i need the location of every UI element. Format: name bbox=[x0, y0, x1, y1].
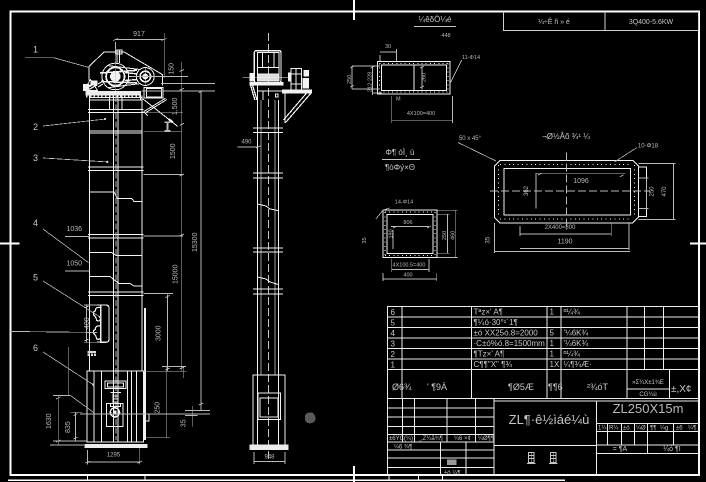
svg-text:¼êδÒ¼é: ¼êδÒ¼é bbox=[419, 15, 452, 24]
svg-text:2X400=800: 2X400=800 bbox=[545, 225, 577, 231]
svg-text:806: 806 bbox=[403, 220, 412, 226]
svg-text:±6: ±6 bbox=[676, 426, 683, 432]
svg-text:250: 250 bbox=[155, 402, 162, 414]
svg-text:Ø6¾: Ø6¾ bbox=[392, 382, 412, 392]
svg-text:4X100=400: 4X100=400 bbox=[407, 111, 435, 117]
svg-text:3Q400-5.6KW: 3Q400-5.6KW bbox=[629, 19, 674, 26]
svg-text:1190: 1190 bbox=[557, 239, 572, 246]
svg-text:º¼¾: º¼¾ bbox=[564, 350, 581, 359]
svg-text:¼Ø¶¶: ¼Ø¶¶ bbox=[478, 436, 494, 442]
svg-text:6: 6 bbox=[33, 343, 38, 353]
svg-text:470: 470 bbox=[662, 186, 668, 197]
svg-text:15000: 15000 bbox=[173, 264, 180, 284]
svg-text:35: 35 bbox=[486, 236, 492, 243]
svg-text:¼6 ×¢: ¼6 ×¢ bbox=[454, 436, 471, 442]
svg-text:CG¼ù: CG¼ù bbox=[639, 392, 656, 398]
svg-text:212·228: 212·228 bbox=[368, 72, 374, 92]
svg-text:' ¶9À: ' ¶9À bbox=[427, 382, 447, 392]
svg-text:¼g: ¼g bbox=[660, 426, 668, 432]
svg-text:10-Φ18: 10-Φ18 bbox=[638, 144, 659, 150]
svg-text:¬Ø½Âõ ¾¹ ¼: ¬Ø½Âõ ¾¹ ¼ bbox=[542, 132, 590, 141]
svg-text:1X: 1X bbox=[550, 360, 560, 369]
svg-text:2: 2 bbox=[391, 350, 396, 359]
svg-text:Φ¶ óÌ¸ ù: Φ¶ óÌ¸ ù bbox=[386, 148, 415, 157]
svg-text:²¾óT: ²¾óT bbox=[587, 382, 609, 392]
svg-text:1: 1 bbox=[391, 361, 396, 370]
svg-text:= ¶Á: = ¶Á bbox=[613, 444, 628, 453]
svg-text:150: 150 bbox=[169, 63, 176, 75]
svg-text:'¼6K¾: '¼6K¾ bbox=[564, 339, 589, 348]
svg-text:35: 35 bbox=[362, 237, 368, 243]
svg-text:»Σ¼X±1¾E: »Σ¼X±1¾E bbox=[632, 380, 664, 386]
svg-text:º¼¾: º¼¾ bbox=[564, 308, 581, 317]
svg-text:1: 1 bbox=[550, 350, 555, 359]
svg-text:¼6 ¾¶: ¼6 ¾¶ bbox=[394, 445, 412, 451]
svg-text:¼¶: ¼¶ bbox=[688, 426, 696, 432]
svg-text:50 x 45°: 50 x 45° bbox=[459, 136, 482, 142]
svg-text:5: 5 bbox=[550, 329, 555, 338]
svg-text:¼ó ¶Í: ¼ó ¶Í bbox=[663, 444, 680, 453]
svg-text:14-Φ14: 14-Φ14 bbox=[395, 200, 413, 206]
svg-text:260: 260 bbox=[422, 73, 428, 82]
svg-text:±ó: ±ó bbox=[623, 426, 630, 432]
svg-text:±ó XX25ó.8=2000: ±ó XX25ó.8=2000 bbox=[474, 329, 539, 338]
svg-text:460: 460 bbox=[451, 231, 457, 240]
svg-text:¶¼ó·30°¹´1¶: ¶¼ó·30°¹´1¶ bbox=[474, 318, 518, 327]
svg-text:2: 2 bbox=[33, 122, 38, 132]
svg-text:835: 835 bbox=[65, 421, 72, 433]
svg-text:250: 250 bbox=[442, 231, 448, 240]
svg-text:11-Φ14: 11-Φ14 bbox=[462, 55, 480, 61]
svg-text:1: 1 bbox=[33, 45, 38, 55]
svg-text:M: M bbox=[396, 97, 401, 103]
svg-text:¶òΦý×Θ: ¶òΦý×Θ bbox=[385, 163, 415, 172]
svg-text:¼Ø: ¼Ø bbox=[636, 426, 646, 432]
svg-text:¶Ø5Æ: ¶Ø5Æ bbox=[508, 382, 534, 392]
svg-text:¼¶¾Æ·: ¼¶¾Æ· bbox=[564, 360, 592, 369]
svg-text:4X100.5=400: 4X100.5=400 bbox=[393, 263, 426, 269]
svg-text:30: 30 bbox=[385, 44, 391, 50]
svg-text:15300: 15300 bbox=[192, 232, 199, 252]
svg-text:¼÷Ê ñ » é: ¼÷Ê ñ » é bbox=[538, 17, 570, 26]
svg-text:6: 6 bbox=[391, 308, 396, 317]
svg-text:·C±ó%ó.8=1500mm: ·C±ó%ó.8=1500mm bbox=[474, 339, 546, 348]
svg-text:3: 3 bbox=[33, 153, 38, 163]
svg-text:'¼6K¾: '¼6K¾ bbox=[564, 329, 589, 338]
svg-text:190: 190 bbox=[389, 229, 395, 238]
svg-text:917: 917 bbox=[133, 31, 145, 38]
svg-text:948: 948 bbox=[264, 455, 275, 461]
svg-text:1036: 1036 bbox=[67, 226, 83, 233]
svg-text:1500: 1500 bbox=[170, 143, 177, 159]
svg-text:ZL250X15m: ZL250X15m bbox=[613, 401, 684, 416]
svg-text:1630: 1630 bbox=[46, 413, 53, 429]
svg-text:4: 4 bbox=[33, 218, 38, 228]
svg-text:¸,Z¼ã¾¶: ¸,Z¼ã¾¶ bbox=[419, 436, 443, 442]
svg-text:448: 448 bbox=[441, 33, 450, 39]
svg-text:1¼: 1¼ bbox=[598, 426, 607, 432]
svg-text:250: 250 bbox=[650, 186, 656, 197]
svg-text:1096: 1096 bbox=[573, 178, 589, 185]
svg-text:400: 400 bbox=[84, 317, 91, 329]
svg-text:¶¶6: ¶¶6 bbox=[548, 382, 563, 392]
svg-text:Tªz×' A¶: Tªz×' A¶ bbox=[474, 308, 503, 317]
svg-text:250: 250 bbox=[347, 75, 353, 84]
svg-text:1: 1 bbox=[550, 308, 555, 317]
svg-text:1,500: 1,500 bbox=[172, 97, 179, 115]
svg-text:35: 35 bbox=[181, 419, 188, 427]
svg-text:R¼: R¼ bbox=[609, 426, 619, 432]
svg-text:4: 4 bbox=[391, 329, 396, 338]
svg-text:400: 400 bbox=[403, 273, 412, 279]
svg-text:1050: 1050 bbox=[67, 261, 83, 268]
svg-text:490: 490 bbox=[241, 140, 252, 146]
svg-text:±,X¢: ±,X¢ bbox=[671, 384, 692, 395]
svg-text:3000: 3000 bbox=[156, 325, 163, 341]
svg-text:1: 1 bbox=[550, 339, 555, 348]
svg-text:¶Tz×' A¶: ¶Tz×' A¶ bbox=[474, 350, 505, 359]
svg-text:1295: 1295 bbox=[107, 453, 121, 459]
svg-text:5: 5 bbox=[391, 319, 396, 328]
svg-text:362: 362 bbox=[524, 185, 530, 196]
svg-text:3: 3 bbox=[391, 340, 396, 349]
svg-text:±6ÝC(¼): ±6ÝC(¼) bbox=[389, 435, 413, 442]
svg-text:5: 5 bbox=[33, 273, 38, 283]
svg-text:C¶¶"X" ¶¾: C¶¶"X" ¶¾ bbox=[474, 360, 513, 369]
svg-text:¶¶: ¶¶ bbox=[650, 426, 656, 432]
svg-text:ZL¶·ê½ìáé¼ù: ZL¶·ê½ìáé¼ù bbox=[509, 412, 590, 427]
svg-text:±ó ¼¶: ±ó ¼¶ bbox=[444, 471, 461, 477]
